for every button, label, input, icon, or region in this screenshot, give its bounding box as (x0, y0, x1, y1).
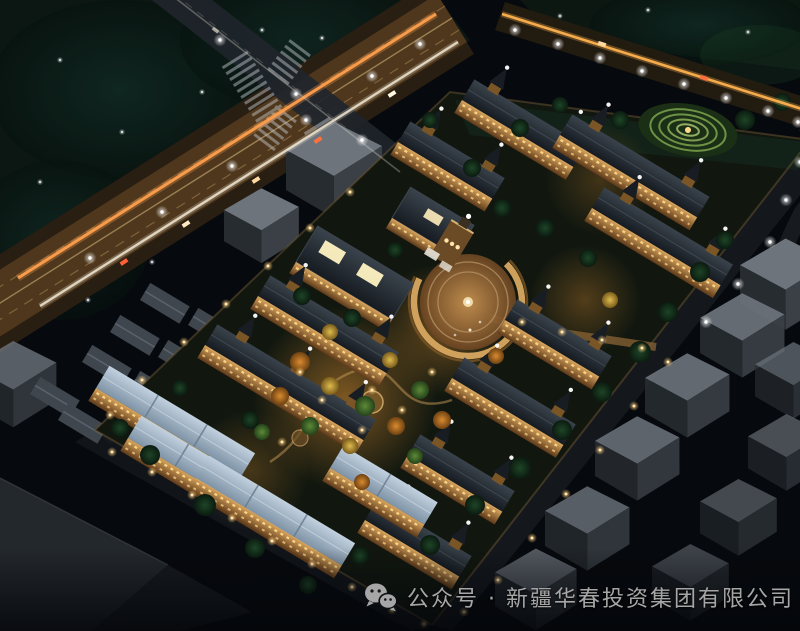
wechat-icon (364, 582, 398, 612)
caption-text: 公众号 · 新疆华春投资集团有限公司 (407, 581, 794, 613)
caption: 公众号 · 新疆华春投资集团有限公司 (364, 580, 794, 614)
night-aerial-rendering: 公众号 · 新疆华春投资集团有限公司 (0, 0, 800, 631)
rendering-canvas (0, 0, 800, 631)
